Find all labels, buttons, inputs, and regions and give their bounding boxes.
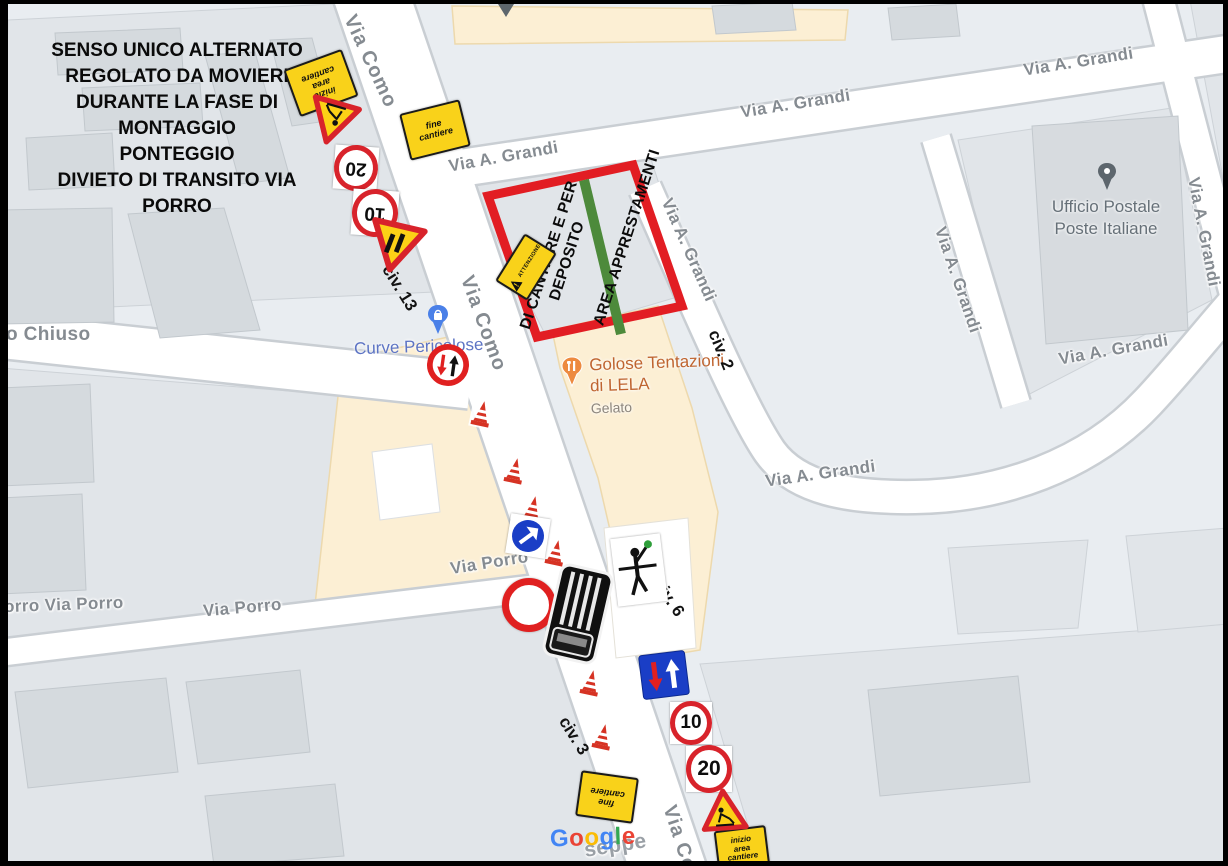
- sign-text: cantiere: [590, 785, 626, 800]
- speed-value: 10: [670, 701, 712, 745]
- note-line: REGOLATO DA MOVIERI: [26, 64, 328, 90]
- street-label-via-porro: orro Via Porro: [4, 593, 124, 617]
- sign-fine-cantiere: fine cantiere: [575, 770, 639, 824]
- poi-name-line: di LELA: [590, 371, 725, 397]
- sign-text: ATTENZIONE: [517, 243, 542, 278]
- speed-limit-20-sign: 20: [333, 145, 380, 192]
- warning-triangle-icon: !: [507, 276, 523, 292]
- google-logo[interactable]: Google: [550, 823, 637, 854]
- street-label-chiuso: o Chiuso: [6, 324, 90, 346]
- sign-text: cantiere: [418, 126, 454, 144]
- plan-frame-top: [0, 0, 1228, 4]
- plan-frame-right: [1223, 0, 1228, 866]
- google-letter: o: [584, 824, 600, 852]
- speed-limit-20-sign: 20: [686, 746, 732, 792]
- google-letter: e: [621, 823, 636, 850]
- shop-poi-pin[interactable]: [426, 304, 450, 341]
- speed-limit-10-sign: 10: [670, 702, 712, 744]
- note-line: DIVIETO DI TRANSITO VIA PORRO: [26, 168, 328, 220]
- google-letter: o: [569, 824, 585, 852]
- poi-name-line: Ufficio Postale: [1030, 196, 1182, 218]
- poi-name-line: Poste Italiane: [1030, 218, 1182, 240]
- instruction-note: SENSO UNICO ALTERNATO REGOLATO DA MOVIER…: [26, 38, 328, 220]
- shopping-bag-icon: [434, 313, 442, 320]
- plan-frame-bottom: [0, 861, 1228, 866]
- priority-over-oncoming-sign: [424, 341, 471, 388]
- flagman-icon: [610, 533, 668, 607]
- note-line: PONTEGGIO: [26, 142, 328, 168]
- note-line: SENSO UNICO ALTERNATO: [26, 38, 328, 64]
- google-letter: g: [599, 823, 615, 851]
- roadworks-triangle-sign: [699, 786, 750, 833]
- plan-frame-left: [0, 0, 8, 866]
- speed-value: 20: [686, 745, 732, 793]
- poi-label-golose: Golose Tentazioni di LELA Gelato: [589, 350, 726, 420]
- gelato-poi-pin[interactable]: [560, 356, 584, 393]
- note-line: DURANTE LA FASE DI MONTAGGIO: [26, 90, 328, 142]
- mandatory-direction-sign: [505, 513, 551, 559]
- post-office-pin[interactable]: [1096, 162, 1118, 197]
- speed-value: 20: [332, 143, 379, 192]
- poi-label-post-office: Ufficio Postale Poste Italiane: [1030, 196, 1182, 240]
- worksite-traffic-plan-map: SENSO UNICO ALTERNATO REGOLATO DA MOVIER…: [0, 0, 1228, 866]
- alternate-one-way-sign: [637, 649, 690, 701]
- google-letter: G: [550, 825, 570, 853]
- building-courtyard: [372, 444, 440, 520]
